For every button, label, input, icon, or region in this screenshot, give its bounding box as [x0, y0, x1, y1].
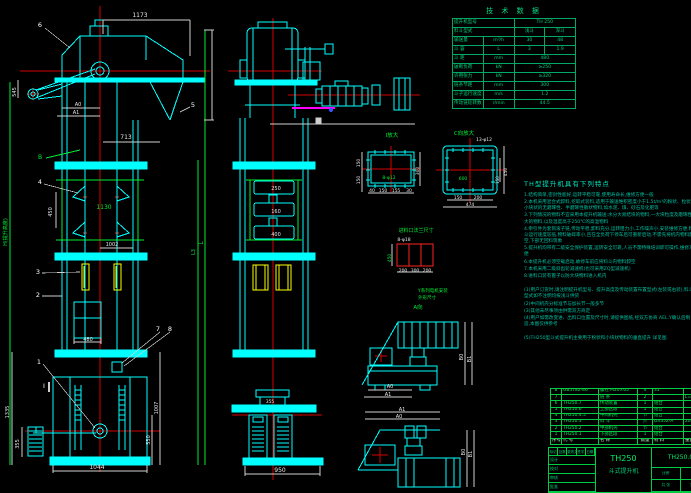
dim-label: B1 — [467, 356, 473, 363]
table-cell: m/s — [483, 91, 514, 100]
table-header-row: 序号代 号名 称数量材 料重量备注 — [551, 438, 691, 444]
table-header-cell: 代 号 — [562, 438, 599, 444]
table-cell: 30 — [514, 37, 545, 46]
list-item: 3.下列情况的物料不宜采用本提升机输送:水分大易结块的物料,一大块粒度及磨琢性大… — [524, 213, 691, 225]
table-cell: L= — [684, 395, 691, 401]
table-row: 斗 容 L 3 1.9 — [453, 46, 576, 55]
dim-label: 450 — [503, 168, 509, 177]
table-cell: 深斗 — [545, 28, 576, 37]
drive-view-2 — [358, 426, 460, 487]
list-item: (5)TH250型斗式提升机主要用于粉状和小块状物料的垂直提升 详见图. — [524, 336, 691, 342]
dim-label: 200 — [423, 268, 432, 274]
cad-canvas: { "drawing": { "balloons": {"b1":"1","b2… — [0, 0, 691, 491]
notes-title: TH型提升机具有下列特点 — [524, 180, 691, 189]
bolt-marks — [68, 164, 302, 410]
table-row: 许用张力 kN ≥320 — [453, 73, 576, 82]
table-header-cell: 序号 — [551, 438, 562, 444]
tech-data-table: 技 术 数 据 提升机型号 TH 250 料斗型式 浅斗 深斗 输送量 m³/h… — [452, 6, 576, 109]
dim-label: A0 — [75, 102, 82, 108]
list-item: (1)用户订货时,请注明提升机型号、提升高度及传动装置布置型式(左装或右装),料… — [524, 288, 691, 300]
dim-label: 400 — [271, 232, 281, 238]
title-block-revisions: 标记处数更改文件号签字日期 设计校对审核批准 — [549, 448, 596, 492]
dim-label: B1 — [468, 451, 474, 458]
signature-labels: 设计校对审核批准 — [549, 456, 595, 492]
dim-label: B0 — [461, 449, 467, 456]
table-cell: mm — [483, 82, 514, 91]
list-item: 比例 — [652, 468, 681, 480]
list-item: 审核 — [549, 474, 595, 483]
table-cell: 300 — [514, 82, 576, 91]
list-item: 2.本机采用混合式卸料,挖取式装料,适用于输送堆积密度小于1.5t/m³的粉状、… — [524, 200, 691, 212]
table-cell: 链条节距 — [453, 82, 484, 91]
table-cell: TH 250 — [514, 19, 576, 28]
drawing-number: TH250.0 — [652, 448, 691, 468]
parts-list: 8GB5782-86螺栓 M20×654357链 条2L=6TH250.7传动装… — [550, 388, 691, 445]
list-item: 5.提升机均带有二级安全保护装置,运转安全可靠,人员不需特殊培训即可操作,维修方… — [524, 246, 691, 258]
parts-list-rows: 8GB5782-86螺栓 M20×654357链 条2L=6TH250.7传动装… — [551, 389, 691, 439]
motor-note-1: Y系列电机安装 — [417, 287, 448, 294]
table-cell: 破断负荷 — [453, 64, 484, 73]
balloon-1: 1 — [37, 358, 41, 366]
section-label-b: B — [38, 154, 42, 161]
table-cell: 204 — [684, 419, 691, 425]
balloon-4: 4 — [38, 178, 42, 186]
dim-label: A1 — [73, 110, 80, 116]
list-item: 数量 — [681, 468, 691, 480]
leader-lines — [42, 28, 190, 428]
dim-label: 200 — [474, 195, 483, 201]
dim-label: 1007 — [154, 402, 160, 415]
list-item — [524, 281, 691, 287]
list-item: 标记 — [549, 448, 558, 455]
list-item: 校对 — [549, 465, 595, 474]
side-view — [232, 22, 410, 465]
table-cell: 1.9 — [545, 46, 576, 55]
motor-note-2: 外形尺寸 — [418, 294, 436, 301]
table-cell: 料斗型式 — [453, 28, 515, 37]
dim-label: 30 — [406, 188, 412, 194]
table-cell: m³/h — [483, 37, 514, 46]
table-cell: 许用张力 — [453, 73, 484, 82]
dim-label: 155 — [392, 188, 401, 194]
balloon-5: 5 — [191, 101, 195, 109]
dim-label: 13-φ12 — [476, 137, 492, 143]
green-labels: 1130 B L3 L H(提升高度) I放大 8-φ12 C向放大 600 进… — [2, 129, 475, 311]
dim-label: 1002 — [106, 242, 119, 248]
table-cell: mm — [483, 55, 514, 64]
balloon-3: 3 — [36, 268, 40, 276]
inlet-flange-detail — [397, 244, 433, 266]
height-label: H(提升高度) — [2, 218, 9, 246]
detail-i-title: I放大 — [386, 131, 399, 139]
detail-c-center: 600 — [459, 176, 468, 182]
table-cell: 斗 容 — [453, 46, 484, 55]
table-row: 提升机型号 TH 250 — [453, 19, 576, 28]
inlet-title: 进料口法兰尺寸 — [398, 227, 433, 234]
dim-label: 474 — [466, 202, 475, 208]
dim-label: 300 — [411, 268, 420, 274]
motor-accent-line — [292, 108, 335, 112]
table-row: 链条节距 mm 300 — [453, 82, 576, 91]
parts-list-header: 序号代 号名 称数量材 料重量备注 — [551, 438, 691, 444]
table-cell: ≥250 — [514, 64, 576, 73]
detail-c-title: C向放大 — [454, 129, 475, 137]
list-item: 更改文件号 — [567, 448, 576, 455]
table-row: 输送量 m³/h 30 48 — [453, 37, 576, 46]
table-header-cell: 名 称 — [599, 438, 638, 444]
dim-label: B0 — [459, 354, 465, 361]
list-item: 4.牵引件为套筒滚子链,传动平稳,卸料充分,运转阻力小,工作噪声小,安装维修方便… — [524, 227, 691, 246]
table-row: 料斗型式 浅斗 深斗 — [453, 28, 576, 37]
dim-label: L — [198, 241, 205, 245]
table-cell: kN — [483, 73, 514, 82]
list-item: 签字 — [577, 448, 586, 455]
dim-label: 355 — [266, 399, 275, 405]
table-row: 斗子运行速度 m/s 1.2 — [453, 91, 576, 100]
list-item: 1.结构简单,密封性能好,运转平稳可靠,使用寿命长,维修方便一般 — [524, 193, 691, 199]
table-cell: 斗 距 — [453, 55, 484, 64]
balloon-6: 6 — [38, 21, 42, 29]
title-block-center: TH250 斗式提升机 — [596, 448, 652, 492]
table-cell: 传动链轮转数 — [453, 100, 484, 109]
product-name: 斗式提升机 — [596, 466, 651, 475]
list-item: 7.本机采用二级斜齿轮减速机(也可采用ZQ型减速机) — [524, 267, 691, 273]
list-item — [524, 329, 691, 335]
dim-label: 200 — [399, 268, 408, 274]
dim-label: 150 — [495, 176, 500, 184]
table-cell: 提升机型号 — [453, 19, 515, 28]
table-cell: 斗子运行速度 — [453, 91, 484, 100]
list-item: 设计 — [549, 456, 595, 465]
list-item: (2)中间机壳分标准节与加长节一般多节 — [524, 302, 691, 308]
dim-label: A0 — [387, 384, 394, 390]
dim-label: 40 — [369, 188, 375, 194]
model-number: TH250 — [596, 454, 651, 463]
dim-label: 550 — [146, 435, 152, 445]
notes-block: TH型提升机具有下列特点 1.结构简单,密封性能好,运转平稳可靠,使用寿命长,维… — [524, 180, 691, 344]
detail-i-bolts: 8-φ12 — [382, 175, 395, 181]
dim-label: 150 — [356, 159, 362, 168]
table-cell: r/min — [483, 100, 514, 109]
dim-label: 545 — [12, 87, 18, 97]
a-view-label: A向 — [413, 303, 422, 311]
dim-label: A1 — [385, 392, 392, 398]
dim-label: 450 — [387, 254, 393, 263]
table-header-cell: 数量 — [638, 438, 653, 444]
dim-label: 250 — [271, 186, 281, 192]
dim-label: A0 — [396, 414, 403, 420]
dim-label: 1130 — [96, 204, 111, 211]
table-header-cell: 材 料 — [653, 438, 684, 444]
dim-label: 8-φ18 — [397, 237, 410, 243]
list-item: (3)其他未尽事项由供需双方商定 — [524, 309, 691, 315]
dim-label: 1044 — [89, 464, 104, 471]
dim-label: 1173 — [132, 12, 147, 19]
list-item: 第 张 — [681, 480, 691, 492]
table-cell: 浅斗 — [514, 28, 545, 37]
table-cell: 48 — [545, 37, 576, 46]
dim-label: 150 — [454, 195, 463, 201]
dim-label: 713 — [120, 134, 132, 141]
table-cell: 3 — [514, 46, 545, 55]
title-block-right: TH250.0 比例数量共 张第 张 — [652, 448, 691, 492]
dim-label: 950 — [274, 467, 286, 474]
dim-label: 160 — [271, 209, 281, 215]
table-row: 传动链轮转数 r/min 44.5 — [453, 100, 576, 109]
list-item: 共 张 — [652, 480, 681, 492]
title-block: 标记处数更改文件号签字日期 设计校对审核批准 TH250 斗式提升机 TH250… — [548, 447, 691, 493]
table-cell: 480 — [514, 55, 576, 64]
notes-lines: 1.结构简单,密封性能好,运转平稳可靠,使用寿命长,维修方便一般2.本机采用混合… — [524, 193, 691, 343]
table-cell: L — [483, 46, 514, 55]
dim-label: 300 — [415, 167, 421, 176]
dim-label: 150 — [356, 176, 362, 185]
balloon-7: 7 — [156, 325, 160, 333]
revision-labels: 标记处数更改文件号签字日期 — [549, 448, 595, 456]
table-cell: kN — [483, 64, 514, 73]
list-item: 6.本提升机必须空载启动,故停车前应将料斗内物料卸空 — [524, 260, 691, 266]
section-mark-i: I — [43, 382, 45, 390]
list-item: 8.进料口装有篦子以防大块物料进入机内 — [524, 274, 691, 280]
yellow-buckets — [82, 264, 291, 290]
dim-label: 355 — [15, 439, 21, 449]
balloon-2: 2 — [36, 291, 40, 299]
table-cell: 44.5 — [514, 100, 576, 109]
table-cell: 输送量 — [453, 37, 484, 46]
dim-label: 150 — [379, 188, 388, 194]
table-cell: 1.2 — [514, 91, 576, 100]
dim-label: 450 — [48, 207, 54, 217]
list-item: (4)用户如需改变进、出料口位置及尺寸时,请提供图纸,经双方协商 AEL.Y确认… — [524, 316, 691, 328]
tech-table-title: 技 术 数 据 — [452, 6, 576, 16]
list-item: 日期 — [586, 448, 595, 455]
dim-label: 480 — [83, 337, 93, 343]
dim-label: 1335 — [5, 406, 11, 419]
drawing-info-cells: 比例数量共 张第 张 — [652, 468, 691, 492]
dim-label: L3 — [191, 249, 197, 255]
table-cell: ≥320 — [514, 73, 576, 82]
balloon-8: 8 — [168, 325, 172, 333]
list-item: 处数 — [558, 448, 567, 455]
table-header-cell: 重量 — [684, 438, 691, 444]
part-balloons: 6 5 4 3 2 1 7 8 I — [36, 21, 195, 390]
table-row: 破断负荷 kN ≥250 — [453, 64, 576, 73]
dim-label: A1 — [399, 407, 406, 413]
table-row: 斗 距 mm 480 — [453, 55, 576, 64]
